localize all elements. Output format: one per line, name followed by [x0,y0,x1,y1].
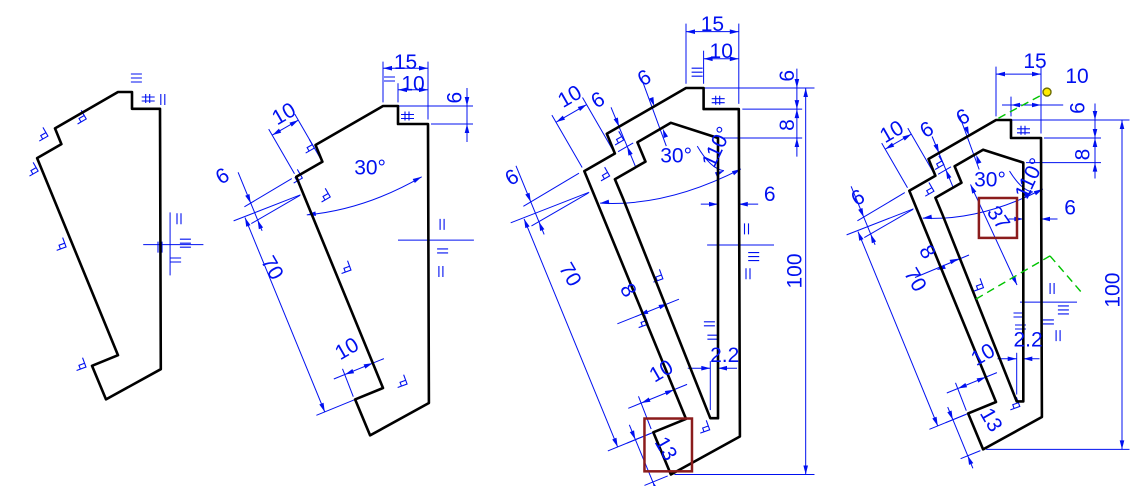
dimension-arrowhead [600,200,610,206]
dimension-label-6[interactable]: 6 [1066,102,1089,114]
parallel-constraint-icon [437,249,448,253]
dimension-arrowhead [1014,217,1023,222]
dimension-line [858,232,938,426]
preview-line [976,256,1050,299]
part-outer-contour[interactable] [296,106,429,435]
dimension-arrowhead [1011,103,1020,108]
dimension-line [618,143,633,152]
dimension-label-8[interactable]: 8 [1072,149,1095,161]
dimension-arrowhead [1093,163,1098,172]
dimension-arrowhead [795,138,800,147]
dimension-label-30deg[interactable]: 30° [660,144,692,167]
dimension-line [244,179,291,207]
dimension-arrowhead [803,88,808,97]
dimension-arrowhead [996,72,1005,77]
dimension-arrowhead [803,466,808,475]
parallel-constraint-icon [384,77,395,81]
dimension-label-8[interactable]: 8 [914,241,940,263]
dimension-arrowhead [795,100,800,109]
parallel-constraint-icon [401,112,414,121]
dimension-line [524,219,618,447]
dimension-line [961,451,981,459]
dimension-label-6[interactable]: 6 [776,70,799,82]
dimension-line [531,193,588,226]
dimension-arrowhead [1032,103,1041,108]
dimension-arrowhead [1120,120,1125,129]
dimension-arrowhead [1093,129,1098,138]
dimension-line [552,115,582,167]
dimension-arrowhead [243,217,251,227]
dimension-arrowhead [922,215,932,221]
parallel-constraint-icon [1058,306,1069,314]
parallel-constraint-icon [746,268,750,279]
drawing-step4-dimension-edit: 1510681066630°110°376708102.213100 [847,50,1130,468]
dimension-line [864,209,913,237]
dimension-arrowhead [730,29,739,34]
dimension-label-6[interactable]: 6 [1064,196,1076,219]
dimension-line [617,299,679,324]
dimension-label-10[interactable]: 10 [268,98,300,130]
perpendicular-constraint-icon [34,127,48,141]
dimension-arrowhead [732,167,742,175]
parallel-constraint-icon [1056,330,1060,341]
dimension-arrowhead [701,366,710,371]
dimension-line [882,143,908,188]
preview-line [1050,256,1082,293]
dimension-label-10[interactable]: 10 [710,40,733,63]
dimension-line [971,185,1018,286]
dimension-label-10[interactable]: 10 [645,356,677,388]
dimension-arrowhead [1093,138,1098,147]
dimension-label-8[interactable]: 8 [776,119,799,131]
dimension-label-6[interactable]: 6 [847,185,869,211]
dimension-line [511,192,589,223]
perpendicular-constraint-icon [596,167,610,181]
dimension-arrowhead [1093,111,1098,120]
dimension-label-100[interactable]: 100 [1102,273,1125,308]
parallel-constraint-icon [180,239,191,247]
parallel-constraint-icon [440,219,444,230]
dimension-label-70[interactable]: 70 [554,259,586,291]
dimension-line [627,434,650,444]
dimension-label-15[interactable]: 15 [1023,50,1046,73]
perpendicular-constraint-icon [301,139,315,153]
parallel-constraint-icon [1017,126,1030,135]
parallel-constraint-icon [692,68,703,76]
dimension-label-6[interactable]: 6 [764,183,776,206]
dimension-arrowhead [413,175,423,183]
parallel-constraint-icon [745,223,749,234]
dimension-line [245,218,325,412]
perpendicular-constraint-icon [317,188,331,202]
technical-drawing-canvas[interactable]: 1510610630°70101510681066630°110°6708102… [0,0,1146,486]
drag-handle-point[interactable] [1043,88,1051,96]
drawing-step1-plain-outline [24,74,203,399]
dimension-label-6[interactable]: 6 [634,65,656,91]
parallel-constraint-icon [439,266,443,277]
dimension-label-6[interactable]: 6 [212,164,234,190]
dimension-label-10[interactable]: 10 [1065,65,1088,88]
dimension-label-6[interactable]: 6 [916,117,938,143]
parallel-constraint-icon [748,253,759,261]
perpendicular-constraint-icon [1007,397,1020,410]
parallel-constraint-icon [704,322,715,326]
dimension-arrowhead [419,66,428,71]
dimension-line [269,129,295,174]
dimension-label-10[interactable]: 10 [331,333,363,365]
dimension-label-70[interactable]: 70 [899,264,931,296]
dimension-label-2.2[interactable]: 2.2 [1013,328,1042,351]
part-outer-contour[interactable] [37,92,161,399]
dimension-arrowhead [1023,357,1032,362]
dimension-label-15[interactable]: 15 [701,13,724,36]
parallel-constraint-icon [131,74,142,82]
dimension-label-110deg[interactable]: 110° [1011,155,1050,203]
dimension-line [234,195,301,221]
dimension-arrowhead [1120,440,1125,449]
parallel-constraint-icon [1050,283,1054,294]
perpendicular-constraint-icon [697,420,710,433]
dimension-label-10[interactable]: 10 [876,116,908,148]
dimension-label-30deg[interactable]: 30° [354,157,386,180]
dimension-line [611,107,635,166]
dimension-arrowhead [856,231,864,241]
dimension-arrowhead [1008,357,1017,362]
perpendicular-constraint-icon [24,162,38,176]
parallel-constraint-icon [161,94,165,105]
dimension-label-6[interactable]: 6 [587,87,609,113]
dimension-label-6[interactable]: 6 [501,165,523,191]
cad-canvas[interactable]: 1510610630°70101510681066630°110°6708102… [0,0,1146,486]
parallel-constraint-icon [712,96,725,105]
dimension-arrowhead [686,29,695,34]
perpendicular-constraint-icon [338,261,351,274]
dimension-label-6[interactable]: 6 [444,92,467,104]
parallel-constraint-icon [170,258,181,262]
dimension-label-15[interactable]: 15 [394,51,417,74]
dimension-line [847,209,914,235]
perpendicular-constraint-icon [53,238,66,251]
dimension-arrowhead [383,66,392,71]
dimension-label-2.2[interactable]: 2.2 [710,344,739,367]
perpendicular-constraint-icon [394,375,407,388]
parallel-constraint-icon [1043,320,1054,324]
parallel-constraint-icon [177,213,181,224]
dimension-label-10[interactable]: 10 [401,73,424,96]
dimension-arrowhead [465,124,470,133]
dimension-label-30deg[interactable]: 30° [974,169,1006,192]
perpendicular-constraint-icon [73,358,86,371]
dimension-line [628,384,687,408]
drawing-step2-outer-dimensions: 1510610630°7010 [212,51,474,435]
dimension-label-100[interactable]: 100 [784,253,807,288]
dimension-line [644,476,667,486]
dimension-line [523,173,579,206]
dimension-arrowhead [709,202,718,207]
drawing-step3-full-dimensions: 1510681066630°110°6708102.213100 [501,13,814,486]
dimension-arrowhead [795,109,800,118]
dimension-label-37[interactable]: 37 [982,202,1014,234]
dimension-label-6[interactable]: 6 [952,104,974,130]
dimension-arrowhead [950,256,960,264]
parallel-constraint-icon [142,94,155,103]
dimension-label-110deg[interactable]: 110° [698,123,737,171]
dimension-arrowhead [522,218,530,228]
dimension-line [946,415,966,423]
dimension-line [251,195,300,223]
